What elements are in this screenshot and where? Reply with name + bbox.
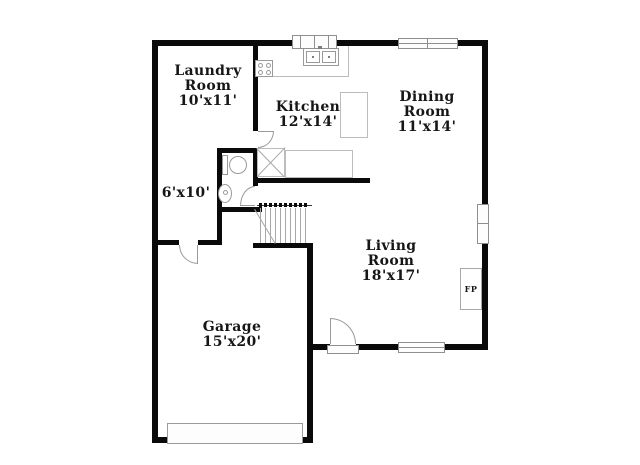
stair-baluster <box>294 203 297 207</box>
stair-baluster <box>274 203 277 207</box>
front-door-swing-arc <box>330 318 356 344</box>
stair-baluster <box>289 203 292 207</box>
living-window-east <box>477 204 489 244</box>
living-room-label: Living Room 18'x17' <box>346 239 436 284</box>
living-window-south-mullion <box>399 347 444 348</box>
wall-front-segment <box>356 344 398 350</box>
sink-drain-icon <box>328 56 330 58</box>
stair-tread <box>275 208 276 243</box>
hall-label: 6'x10' <box>154 186 218 201</box>
faucet-icon <box>318 46 322 49</box>
wall-front-segment <box>445 344 488 350</box>
fireplace: FP <box>460 268 482 310</box>
stair-tread <box>305 208 306 243</box>
dining-room-label: Dining Room 11'x14' <box>381 90 473 135</box>
sink-drain-icon <box>223 190 228 195</box>
stair-tread <box>295 208 296 243</box>
wall-kitchen-south <box>253 178 370 183</box>
wall-bath-north <box>217 148 258 153</box>
stair-baluster <box>279 203 282 207</box>
kitchen-window-mullion <box>328 36 329 48</box>
kitchen-lower-counter <box>285 150 353 178</box>
wall-top-segment <box>152 40 293 46</box>
kitchen-counter-edge <box>348 46 349 77</box>
garage-label: Garage 15'x20' <box>183 320 281 350</box>
wall-garage-north-segment <box>152 240 179 245</box>
stair-baluster <box>284 203 287 207</box>
stair-baluster <box>269 203 272 207</box>
stair-tread <box>290 208 291 243</box>
laundry-door-swing-arc <box>258 131 274 148</box>
toilet-tank <box>222 155 228 175</box>
stair-tread <box>300 208 301 243</box>
fireplace-label: FP <box>465 284 478 294</box>
wall-stairs-south <box>253 243 313 248</box>
stair-tread <box>260 208 261 243</box>
wall-garage-east <box>307 243 313 443</box>
laundry-room-label: Laundry Room 10'x11' <box>152 64 264 109</box>
garage-door-swing-arc <box>179 245 198 264</box>
front-door-threshold <box>327 345 359 354</box>
dining-window-mullion <box>399 43 457 44</box>
bathroom-door-swing-arc <box>240 186 255 206</box>
kitchen-label: Kitchen 12'x14' <box>262 100 354 130</box>
living-window-east-mullion <box>478 223 488 224</box>
toilet-bowl <box>229 156 247 174</box>
stair-tread <box>285 208 286 243</box>
stair-baluster <box>264 203 267 207</box>
wall-top-segment <box>337 40 398 46</box>
stair-baluster <box>304 203 307 207</box>
stair-tread <box>280 208 281 243</box>
stair-baluster <box>259 203 262 207</box>
garage-door <box>167 423 303 444</box>
wall-east-segment <box>482 40 488 207</box>
kitchen-window-mullion <box>314 36 315 48</box>
kitchen-window-mullion <box>300 36 301 48</box>
burner-icon <box>266 70 271 75</box>
burner-icon <box>266 63 271 68</box>
wall-east-segment <box>482 243 488 350</box>
sink-drain-icon <box>312 56 314 58</box>
stair-baluster <box>299 203 302 207</box>
floor-plan-canvas: FP Laundry Room 10'x11' Kitchen 12'x14' … <box>0 0 640 465</box>
